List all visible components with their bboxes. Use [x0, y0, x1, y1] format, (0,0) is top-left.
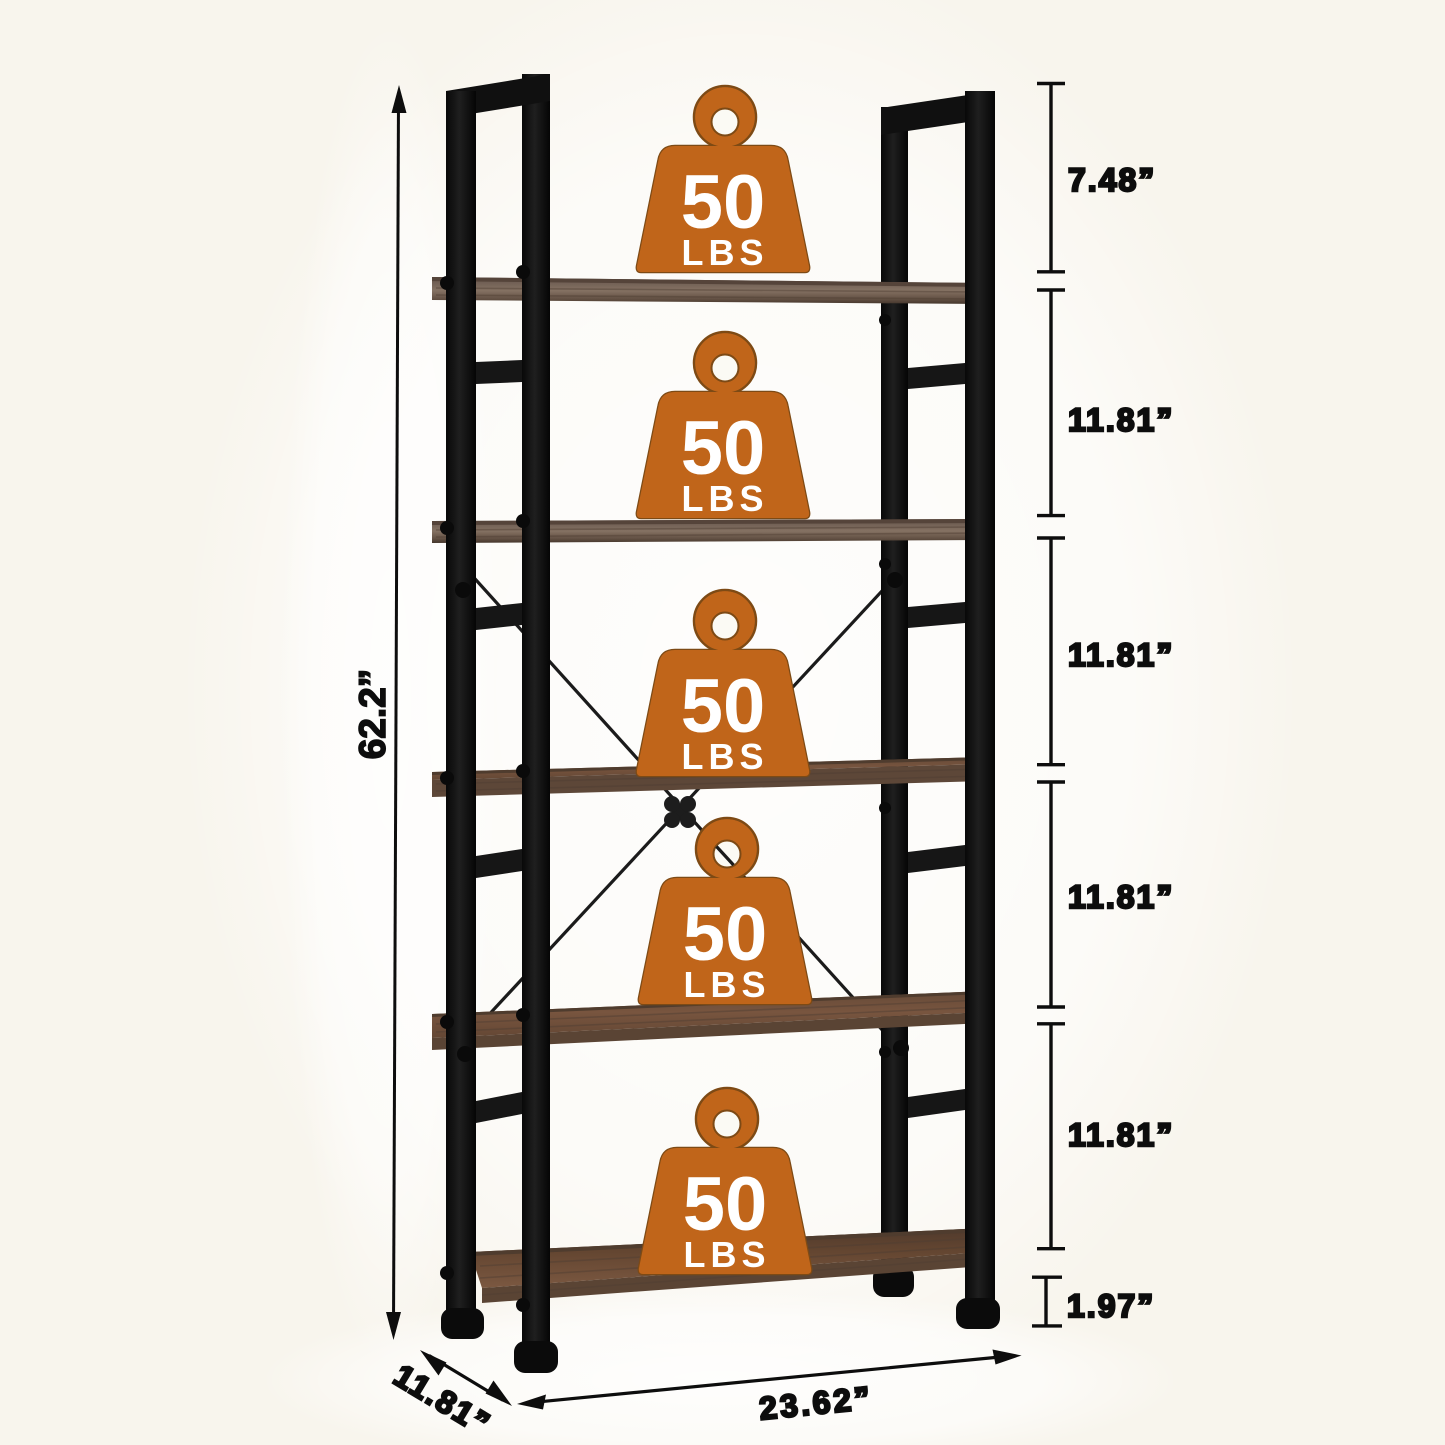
- svg-text:11.81”: 11.81”: [1068, 402, 1174, 438]
- svg-text:11.81”: 11.81”: [1068, 879, 1174, 915]
- svg-text:1.97”: 1.97”: [1067, 1288, 1155, 1324]
- svg-text:11.81”: 11.81”: [1068, 1117, 1174, 1153]
- svg-text:11.81”: 11.81”: [1068, 637, 1174, 673]
- svg-text:7.48”: 7.48”: [1068, 162, 1156, 198]
- svg-text:62.2”: 62.2”: [352, 669, 393, 760]
